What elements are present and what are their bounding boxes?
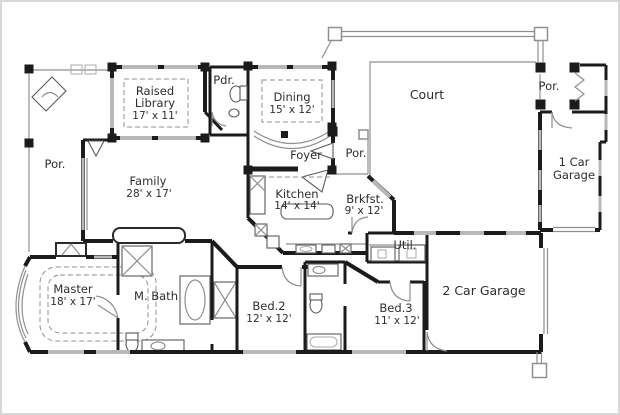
label-foyer: Foyer bbox=[290, 148, 322, 162]
label-family-dims: 28' x 17' bbox=[126, 188, 171, 200]
label-garage1-1: 1 Car bbox=[559, 155, 590, 169]
outdoor-fireplace bbox=[32, 77, 66, 111]
floor-plan-image: Raised Library 17' x 11' Pdr. Dining 15'… bbox=[0, 0, 620, 415]
garage1-door-arc bbox=[552, 112, 572, 128]
hall-bath bbox=[305, 262, 345, 352]
label-master-dims: 18' x 17' bbox=[50, 296, 95, 308]
drive-post bbox=[533, 364, 547, 378]
label-util: Util. bbox=[394, 238, 417, 252]
floor-plan-svg: Raised Library 17' x 11' Pdr. Dining 15'… bbox=[0, 0, 620, 415]
label-court: Court bbox=[410, 87, 444, 102]
label-por-center: Por. bbox=[346, 146, 367, 160]
left-porch bbox=[25, 65, 113, 253]
washer bbox=[371, 247, 395, 261]
label-por-left: Por. bbox=[45, 157, 66, 171]
label-library-dims: 17' x 11' bbox=[132, 110, 177, 122]
label-family: Family bbox=[129, 174, 166, 188]
brkfst-util-door bbox=[352, 217, 368, 233]
label-bed2: Bed.2 bbox=[252, 299, 285, 313]
porch-post bbox=[25, 139, 34, 148]
master-vestibule bbox=[56, 243, 86, 256]
label-por-right: Por. bbox=[539, 79, 560, 93]
label-brkfst: Brkfst. bbox=[346, 192, 383, 206]
label-brkfst-dims: 9' x 12' bbox=[345, 205, 384, 217]
label-garage1-2: Garage bbox=[553, 168, 595, 182]
sink bbox=[229, 109, 239, 117]
label-mbath: M. Bath bbox=[134, 289, 178, 303]
label-kitchen: Kitchen bbox=[275, 187, 318, 201]
label-kitchen-dims: 14' x 14' bbox=[274, 200, 319, 212]
label-bed3: Bed.3 bbox=[379, 301, 412, 315]
kitchen-counter bbox=[250, 176, 265, 214]
fence-post bbox=[329, 28, 342, 41]
family-fireplace bbox=[113, 228, 185, 243]
label-bed2-dims: 12' x 12' bbox=[246, 313, 291, 325]
court-fence bbox=[322, 28, 548, 63]
label-dining: Dining bbox=[273, 90, 310, 104]
bath2-tub bbox=[307, 334, 341, 350]
bed2-door bbox=[282, 267, 301, 286]
porch-post bbox=[25, 65, 34, 74]
master-door-arc bbox=[96, 296, 118, 318]
garage2-entry-door bbox=[427, 332, 447, 351]
label-dining-dims: 15' x 12' bbox=[269, 104, 314, 116]
label-pdr: Pdr. bbox=[213, 73, 235, 87]
room-labels: Raised Library 17' x 11' Pdr. Dining 15'… bbox=[45, 73, 596, 327]
porch-window-zigzag bbox=[575, 73, 584, 101]
family-walls bbox=[83, 140, 237, 267]
label-master: Master bbox=[53, 282, 93, 296]
label-garage2: 2 Car Garage bbox=[442, 283, 526, 298]
family-door bbox=[88, 141, 104, 156]
dining-bay-arc bbox=[254, 131, 330, 144]
court-outline bbox=[370, 62, 536, 176]
bed3-door bbox=[390, 282, 410, 301]
fence-post bbox=[535, 28, 548, 41]
label-library-2: Library bbox=[135, 96, 175, 110]
label-bed3-dims: 11' x 12' bbox=[374, 315, 419, 327]
